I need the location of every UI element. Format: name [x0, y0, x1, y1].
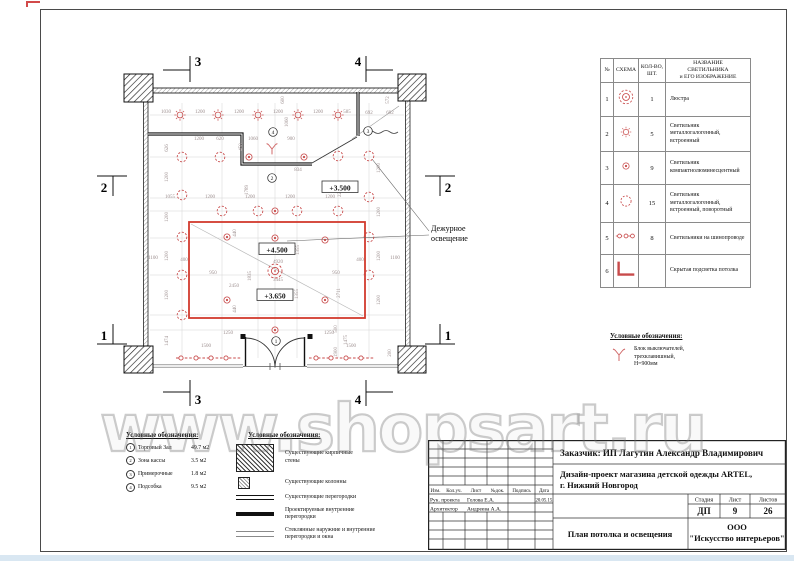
section-marker: 2: [425, 176, 455, 196]
rev-header: Подпись: [512, 489, 531, 494]
section-marker: 3: [163, 54, 202, 82]
dimension-label: 834: [294, 168, 302, 173]
legend-item: Блок выключателей, трехклавишный, Н=900м…: [610, 346, 760, 369]
fixture-name: Светильники на шинопроводе: [666, 223, 751, 255]
annotation-text: Дежурноеосвещение: [431, 224, 468, 243]
svg-text:4: 4: [355, 54, 362, 69]
track-lights: [309, 356, 375, 360]
dimension-label: 2450: [229, 284, 240, 289]
fixtures-table-row: 39Светильник компактнолюминесцентный: [601, 152, 751, 185]
fixture-no: 4: [601, 185, 614, 223]
right-wall: [406, 101, 411, 347]
column: [124, 74, 153, 102]
column: [398, 74, 426, 101]
dimension-label: 1200: [377, 251, 382, 262]
room-tag: 3: [364, 127, 373, 136]
customer-line: Заказчик: ИП Лагутин Александр Владимиро…: [560, 448, 763, 458]
fixture-no: 5: [601, 223, 614, 255]
section-marker: 1: [425, 324, 455, 344]
svg-text:3: 3: [195, 392, 202, 407]
section-marker: 4: [355, 54, 393, 82]
svg-text:+4.500: +4.500: [266, 245, 287, 254]
legend-item-label: Существующие перегородки: [285, 494, 356, 502]
dimension-label: 1055: [165, 195, 176, 200]
fixture-qty: [639, 255, 666, 288]
section-marker: 4: [355, 380, 393, 407]
wall-legend-item: Проектируемые внутренние перегородки: [236, 507, 426, 522]
project-title-line1: Дизайн-проект магазина детской одежды AR…: [560, 469, 752, 479]
dimension-label: 1475: [344, 335, 349, 346]
rev-header: Дата: [539, 489, 550, 494]
room-name: Торговый Зал: [138, 445, 188, 451]
dimension-label: 1100: [148, 256, 158, 261]
stage-value: ДП: [697, 506, 710, 516]
dimension-label: 572: [386, 96, 391, 104]
room-area: 49.7 м2: [191, 445, 209, 451]
corner-mark: [26, 1, 40, 7]
project-title-line2: г. Нижний Новгород: [560, 480, 639, 490]
dimension-label: 2711: [337, 288, 342, 298]
room-legend-item: 3Примерочные1.8 м2: [126, 470, 236, 479]
dimension-label: 1250: [223, 331, 234, 336]
legend-walls: Условные обозначения: Существующие кирпи…: [236, 432, 426, 542]
rev-header: Лист: [471, 489, 482, 494]
svg-text:+3.650: +3.650: [264, 291, 285, 300]
dimension-label: 4920: [273, 260, 284, 265]
dimension-label: 1060: [248, 137, 259, 142]
svg-text:4: 4: [355, 392, 362, 407]
drawing-title: План потолка и освещения: [568, 529, 673, 539]
dimension-label: 500: [334, 325, 339, 333]
fixtures-table-row: 58Светильники на шинопроводе: [601, 223, 751, 255]
col-header-qty: КОЛ-ВО, ШТ.: [639, 59, 666, 83]
dimension-label: 1200: [285, 195, 296, 200]
room-tag: 4: [269, 128, 278, 137]
switch-icon: [610, 346, 628, 369]
room-tag: 1: [272, 337, 281, 346]
dimension-label: 1900: [334, 347, 339, 358]
room-name: Примерочные: [138, 471, 188, 477]
room-number-badge: 1: [126, 443, 135, 452]
legend-title: Условные обозначения:: [126, 432, 236, 439]
legend-switch: Условные обозначения: Блок выключателей,…: [610, 333, 760, 369]
fixture-no: 1: [601, 83, 614, 117]
room-name: Подсобка: [138, 484, 188, 490]
wall-legend-item: Существующие колонны: [236, 477, 426, 489]
rev-header: №док.: [491, 488, 505, 494]
cove-lighting-icon: [614, 255, 639, 288]
svg-text:+3.500: +3.500: [329, 183, 350, 192]
section-marker: 3: [163, 380, 202, 407]
track-lights-icon: [614, 223, 639, 255]
room-area: 1.8 м2: [191, 471, 206, 477]
legend-item-label: Проектируемые внутренние перегородки: [285, 507, 355, 522]
dimension-label: 1200: [377, 295, 382, 306]
fixture-name: Люстра: [666, 83, 751, 117]
col-header-no: №: [601, 59, 614, 83]
rev-header: Кол.уч.: [446, 489, 462, 494]
dimension-label: 1200: [325, 195, 336, 200]
legend-item-label: Стеклянные наружние и внутренние перегор…: [285, 527, 375, 542]
dimension-label: 1060: [285, 117, 290, 128]
legend-title: Условные обозначения:: [610, 333, 760, 340]
dimension-label: 400: [180, 258, 188, 263]
compact-fluorescent-light: [224, 297, 230, 303]
column: [124, 346, 153, 373]
room-name: Зона кассы: [138, 458, 188, 464]
dimension-label: 440: [233, 229, 238, 237]
sheets-label: Листов: [759, 498, 777, 504]
room-legend-item: 4Подсобка9.5 м2: [126, 483, 236, 492]
fixture-name: Светильник металлогалогенный, встроенный: [666, 117, 751, 152]
fixture-no: 2: [601, 117, 614, 152]
compact-fluorescent-light: [322, 297, 328, 303]
wall-legend-item: Стеклянные наружние и внутренние перегор…: [236, 527, 426, 542]
rotatable-light-icon: [614, 185, 639, 223]
svg-text:3: 3: [195, 54, 202, 69]
fixture-qty: 5: [639, 117, 666, 152]
dimension-label: 1250: [324, 331, 335, 336]
fixture-qty: 15: [639, 185, 666, 223]
sheet-value: 9: [733, 506, 738, 516]
legend-item-label: Существующие колонны: [285, 479, 347, 487]
compact-fluorescent-icon: [614, 152, 639, 185]
dimension-label: 692: [386, 111, 394, 116]
fixtures-table-row: 25Светильник металлогалогенный, встроенн…: [601, 117, 751, 152]
signature-role: Рук. проекта: [430, 497, 460, 503]
dimension-label: 950: [209, 271, 217, 276]
dimension-label: 1200: [313, 110, 324, 115]
bottom-strip: [0, 555, 794, 561]
room-number-badge: 2: [126, 456, 135, 465]
annotation: Дежурноеосвещение: [431, 224, 468, 243]
dimension-label: 200: [388, 349, 393, 357]
signature-date: 20.05.15.: [536, 498, 554, 503]
dimension-label: 692: [365, 111, 373, 116]
dimension-label: 1355: [296, 245, 301, 256]
fixtures-table: № СХЕМА КОЛ-ВО, ШТ. НАЗВАНИЕ СВЕТИЛЬНИКА…: [600, 58, 750, 288]
dimension-label: 1030: [161, 110, 172, 115]
dimension-label: 1200: [194, 137, 205, 142]
svg-text:2: 2: [101, 180, 108, 195]
title-block: Заказчик: ИП Лагутин Александр Владимиро…: [428, 440, 786, 550]
room-legend-item: 1Торговый Зал49.7 м2: [126, 443, 236, 452]
dimension-label: 900: [287, 137, 295, 142]
glass-partition-icon: [236, 531, 274, 536]
ceiling-plan: 1030120012001200120058569269257260010601…: [95, 40, 485, 420]
track-lights: [176, 356, 241, 360]
wall-legend-item: Существующие перегородки: [236, 494, 426, 502]
dimension-label: 1474: [165, 336, 170, 347]
dimension-label: 1835: [248, 271, 253, 282]
section-marker: 1: [97, 324, 127, 344]
door-swing-arc: [246, 338, 276, 368]
room-number-badge: 4: [126, 483, 135, 492]
drawing-sheet: 1030120012001200120058569269257260010601…: [0, 0, 794, 561]
dimension-label: 1200: [245, 195, 256, 200]
dimension-label: 400: [356, 258, 364, 263]
recessed-light-icon: [614, 117, 639, 152]
dimension-label: 950: [332, 271, 340, 276]
dimension-label: 1200: [195, 110, 206, 115]
dimension-label: 1200: [165, 290, 170, 301]
elevation-label: +4.500: [259, 243, 295, 255]
dimension-label: 440: [233, 305, 238, 313]
column: [398, 346, 426, 373]
room-area: 9.5 м2: [191, 484, 206, 490]
company-name-line2: "Искусство интерьеров": [689, 533, 784, 543]
room-legend-item: 2Зона кассы3.5 м2: [126, 456, 236, 465]
dimension-label: 1200: [165, 172, 170, 183]
chandelier-icon: [614, 83, 639, 117]
fixture-name: Светильник компактнолюминесцентный: [666, 152, 751, 185]
dimension-label: 1355: [295, 289, 300, 300]
rev-header: Изм.: [431, 489, 441, 494]
fixture-no: 3: [601, 152, 614, 185]
elevation-label: +3.500: [322, 181, 358, 193]
top-wall: [153, 88, 398, 93]
fixture-qty: 9: [639, 152, 666, 185]
section-marker: 2: [97, 176, 127, 196]
signature-name: Андреева А.А.: [467, 506, 502, 512]
dimension-label: 626: [165, 144, 170, 152]
fixture-qty: 8: [639, 223, 666, 255]
wall-legend-item: Существующие кирпичные стены: [236, 444, 426, 472]
dimension-label: 1200: [234, 110, 245, 115]
svg-text:1: 1: [275, 339, 278, 345]
fixture-name: Скрытая подсветка потолка: [666, 255, 751, 288]
door-jamb: [308, 334, 313, 339]
existing-partition-icon: [236, 495, 274, 500]
fixtures-table-row: 11Люстра: [601, 83, 751, 117]
dimension-label: 3445: [273, 278, 284, 283]
fixtures-table-row: 6Скрытая подсветка потолка: [601, 255, 751, 288]
legend-title: Условные обозначения:: [248, 432, 426, 439]
room-tag: 2: [268, 174, 277, 183]
svg-text:1: 1: [445, 328, 452, 343]
fixture-name: Светильник металлогалогенный, встроенный…: [666, 185, 751, 223]
svg-text:1: 1: [101, 328, 108, 343]
room-area: 3.5 м2: [191, 458, 206, 464]
sheets-value: 26: [764, 506, 774, 516]
dimension-label: 600: [281, 96, 286, 104]
dimension-label: 1200: [377, 207, 382, 218]
signature-role: Архитектор: [430, 506, 458, 512]
brick-wall-icon: [236, 444, 274, 472]
svg-text:4: 4: [272, 130, 275, 136]
left-wall: [144, 102, 149, 347]
col-header-name: НАЗВАНИЕ СВЕТИЛЬНИКА и ЕГО ИЗОБРАЖЕНИЕ: [666, 59, 751, 83]
dimension-label: 1200: [165, 251, 170, 262]
fixtures-table-row: 415Светильник металлогалогенный, встроен…: [601, 185, 751, 223]
sheet-label: Лист: [729, 498, 742, 504]
dimension-label: 620: [216, 137, 224, 142]
stage-label: Стадия: [695, 498, 714, 504]
switch-block-symbol: [267, 144, 278, 155]
fixture-no: 6: [601, 255, 614, 288]
door-jamb: [241, 334, 246, 339]
svg-text:2: 2: [445, 180, 452, 195]
svg-text:2: 2: [271, 176, 274, 182]
fixture-qty: 1: [639, 83, 666, 117]
dimension-label: 1200: [273, 110, 284, 115]
light-fixtures: [174, 109, 375, 360]
dimension-label: 1200: [165, 212, 170, 223]
dimension-label: 1200: [377, 163, 382, 174]
legend-rooms: Условные обозначения: 1Торговый Зал49.7 …: [126, 432, 236, 492]
compact-fluorescent-light: [224, 234, 230, 240]
signature-name: Голова Е.А.: [467, 497, 495, 503]
dimension-label: 1789: [245, 185, 250, 196]
dimension-label: 450: [239, 143, 244, 151]
legend-item-label: Существующие кирпичные стены: [285, 450, 353, 465]
col-header-schema: СХЕМА: [614, 59, 639, 83]
column-icon: [238, 477, 250, 489]
elevation-label: +3.650: [257, 289, 293, 301]
room-number-badge: 3: [126, 470, 135, 479]
svg-text:3: 3: [367, 129, 370, 135]
dimension-label: 585: [343, 110, 351, 115]
company-name-line1: ООО: [727, 522, 747, 532]
dimension-label: 1500: [201, 344, 212, 349]
legend-item-label: Блок выключателей, трехклавишный, Н=900м…: [634, 346, 684, 369]
dimension-label: 1200: [205, 195, 216, 200]
new-partition-icon: [236, 512, 274, 515]
dimension-label: 1100: [390, 256, 400, 261]
